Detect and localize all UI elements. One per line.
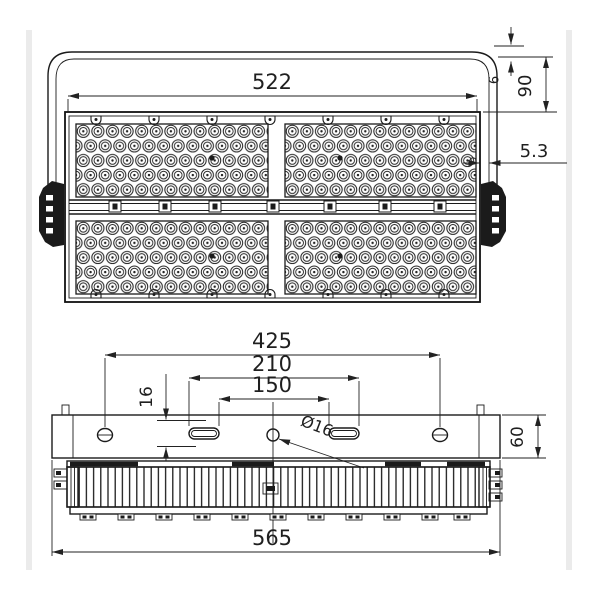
dim-425-label: 425	[252, 329, 292, 353]
middle-rail	[69, 200, 476, 214]
left-pivot-knob	[39, 181, 64, 247]
front-view: 522 6 90 5.3	[39, 27, 567, 302]
dim-5-3-label: 5.3	[520, 141, 549, 162]
floodlight-body	[39, 112, 506, 302]
fin-array	[78, 467, 479, 507]
dim-90-label: 90	[515, 75, 536, 98]
dim-60: 60	[502, 415, 546, 458]
drawing-sheet: 522 6 90 5.3	[0, 0, 600, 600]
mount-hole-right	[432, 429, 448, 442]
top-edge-clips	[91, 116, 449, 125]
dim-522-label: 522	[252, 70, 292, 94]
dim-16: 16	[137, 374, 206, 461]
led-panel-top-right	[285, 124, 476, 197]
slot-right	[329, 428, 359, 439]
dim-5-3: 5.3	[463, 141, 567, 164]
heatsink-feet	[80, 514, 470, 520]
dim-565-label: 565	[252, 526, 292, 550]
side-clips-left	[54, 469, 67, 489]
bottom-view: 425 210 150 16 Ø16	[52, 329, 546, 556]
led-panel-top-left	[76, 124, 268, 197]
dim-60-label: 60	[508, 426, 528, 448]
slot-left	[189, 428, 219, 439]
dim-16-label: 16	[137, 386, 157, 408]
led-panel-bottom-left	[76, 221, 268, 294]
technical-drawing: 522 6 90 5.3	[0, 0, 600, 600]
mount-hole-left	[97, 429, 113, 442]
heatsink	[54, 461, 502, 520]
dim-6-label: 6	[488, 76, 503, 84]
led-panel-bottom-right	[285, 221, 476, 294]
right-pivot-knob	[481, 181, 506, 247]
dim-150-label: 150	[252, 373, 292, 397]
dim-522: 522	[68, 70, 477, 112]
